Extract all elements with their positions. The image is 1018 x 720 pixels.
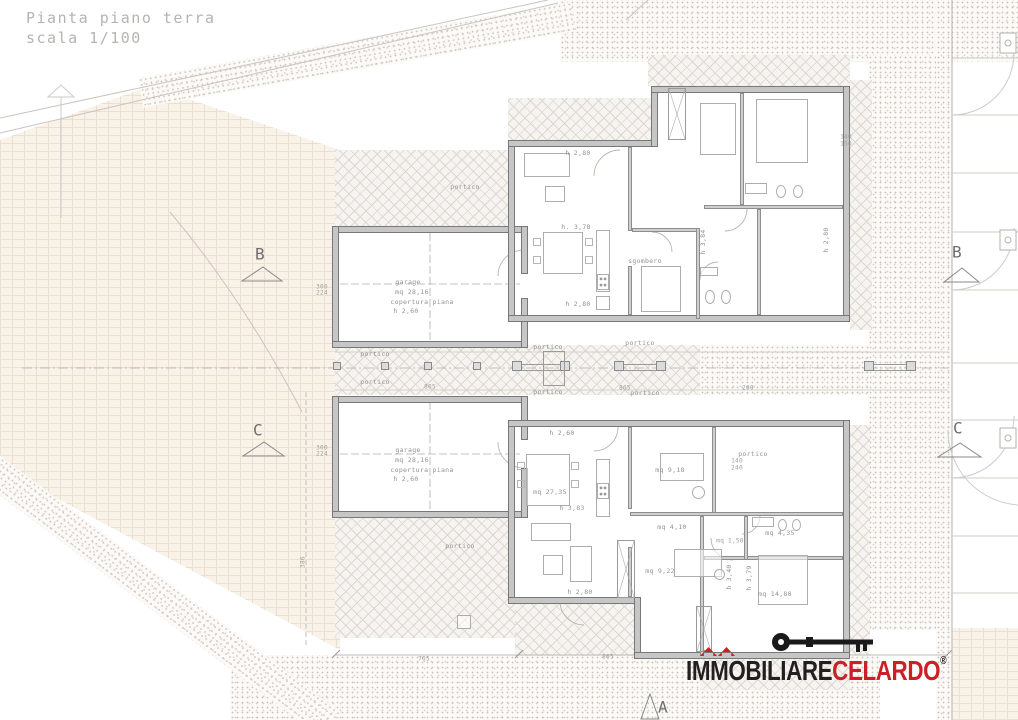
plan-label: 705 (418, 656, 430, 663)
plan-label: 140 (840, 134, 852, 141)
title-line1: Pianta piano terra (26, 8, 216, 28)
plan-label: mq 14,80 (758, 590, 792, 598)
plan-label: h 2,60 (393, 475, 418, 483)
section-letter: C (253, 421, 263, 440)
section-letter: A (658, 698, 668, 717)
plan-label: mq 9,22 (645, 567, 675, 575)
plan-label: 240 (731, 465, 743, 472)
plan-label: h 3,83 (559, 504, 584, 512)
brand-wordmark: IMMOBILIARECELARDO® (686, 655, 946, 687)
plan-label: h 2,80 (565, 300, 590, 308)
plan-label: portico (450, 183, 480, 191)
plan-label: portico (360, 378, 390, 386)
plan-label: h 3,79 (745, 565, 753, 590)
section-letter: B (952, 243, 962, 262)
agency-logo: IMMOBILIARECELARDO® (686, 628, 936, 692)
plan-label: sgombero (628, 257, 662, 265)
plan-label: portico (360, 350, 390, 358)
section-letter: C (953, 419, 963, 438)
brand-red: CELARDO (832, 655, 940, 686)
plan-label: mq 4,10 (657, 523, 687, 531)
plan-label: portico (625, 339, 655, 347)
key-icon (772, 628, 882, 656)
plan-label: 200 (742, 385, 754, 392)
plan-label: portico (630, 389, 660, 397)
plan-label: mq 4,35 (765, 529, 795, 537)
plan-label: 150 (840, 141, 852, 148)
plan-label: 140 (731, 458, 743, 465)
plan-label: copertura piana (390, 298, 453, 306)
plan-label: portico (533, 343, 563, 351)
plan-label: portico (445, 542, 475, 550)
plan-label: 224 (316, 451, 328, 458)
plan-label: h 2,80 (565, 149, 590, 157)
plan-label: mq 27,35 (533, 488, 567, 496)
plan-label: h 3,84 (699, 229, 707, 254)
plan-label: h. 3,78 (561, 223, 591, 231)
plan-label: h 2,80 (822, 227, 830, 252)
plan-label: 865 (602, 654, 614, 661)
plan-label: h 3,40 (725, 564, 733, 589)
plan-label: mq 9,18 (655, 466, 685, 474)
section-letter: B (255, 245, 265, 264)
registered-mark: ® (940, 655, 946, 667)
plan-label: h 2,60 (393, 307, 418, 315)
plan-labels-layer: porticogaragemq 28,16copertura pianah 2,… (0, 0, 1018, 720)
title-line2: scala 1/100 (26, 28, 216, 48)
plan-label: 805 (424, 384, 436, 391)
plan-label: h 2,80 (567, 588, 592, 596)
plan-label: 805 (619, 385, 631, 392)
plan-label: copertura piana (390, 466, 453, 474)
plan-label: h 2,60 (549, 429, 574, 437)
drawing-title: Pianta piano terra scala 1/100 (26, 8, 216, 49)
floor-plan-canvas: porticogaragemq 28,16copertura pianah 2,… (0, 0, 1018, 720)
plan-label: 224 (316, 290, 328, 297)
plan-label: portico (533, 388, 563, 396)
plan-label: garage (395, 446, 420, 454)
plan-label: 386 (300, 556, 307, 568)
plan-label: garage (395, 278, 420, 286)
plan-label: mq 28,16 (395, 288, 429, 296)
plan-label: mq 28,16 (395, 456, 429, 464)
plan-label: mq 1,50 (716, 538, 743, 545)
brand-black: IMMOBILIARE (686, 655, 832, 686)
